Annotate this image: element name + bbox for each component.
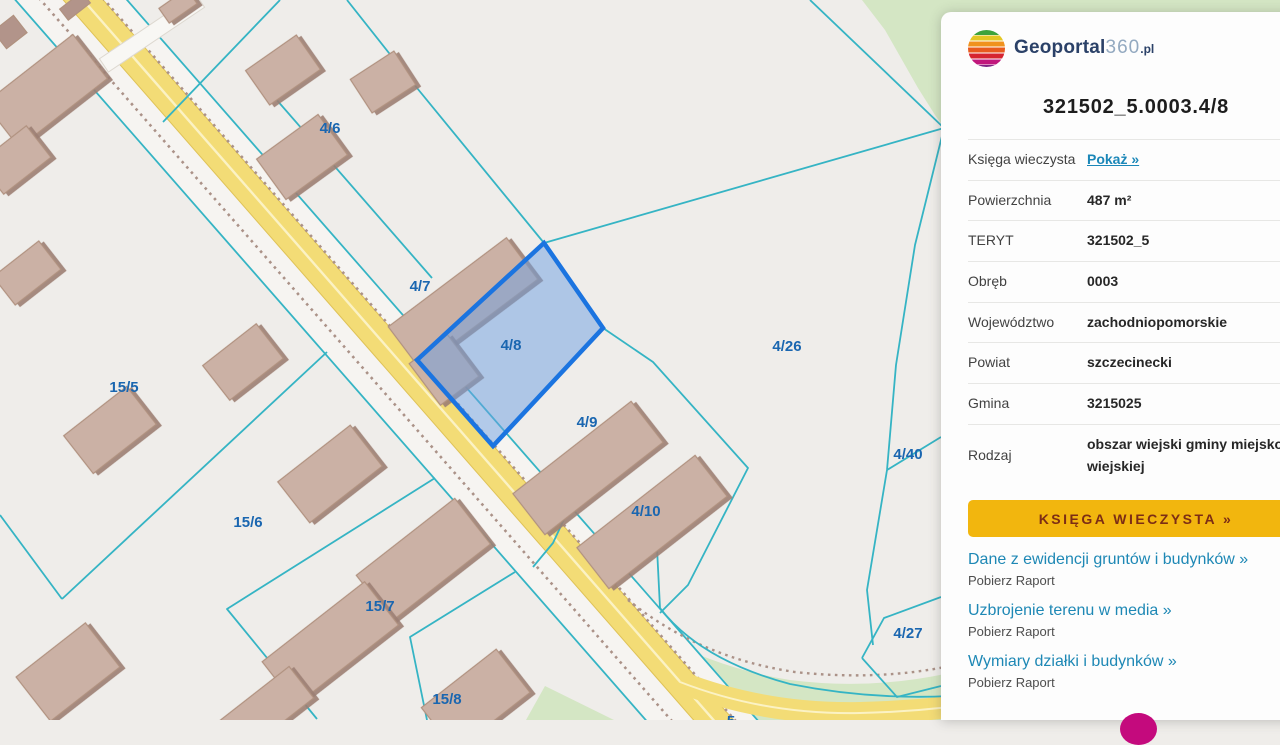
report-links: Dane z ewidencji gruntów i budynków » Po… bbox=[968, 551, 1280, 690]
logo-text-secondary: 360 bbox=[1106, 37, 1141, 58]
logo-wordmark: Geoportal360.pl bbox=[1014, 37, 1154, 59]
row-label: Księga wieczysta bbox=[968, 140, 1087, 181]
link-wymiary[interactable]: Wymiary działki i budynków » bbox=[968, 653, 1280, 671]
parcel-label-4-7[interactable]: 4/7 bbox=[410, 278, 431, 295]
link-subtitle[interactable]: Pobierz Raport bbox=[968, 675, 1280, 690]
table-row: Powiat szczecinecki bbox=[968, 343, 1280, 384]
parcel-label-15-5[interactable]: 15/5 bbox=[109, 379, 138, 396]
row-label: TERYT bbox=[968, 221, 1087, 262]
parcel-label-4-26[interactable]: 4/26 bbox=[772, 338, 801, 355]
parcel-label-15-6[interactable]: 15/6 bbox=[233, 514, 262, 531]
table-row: Powierzchnia 487 m² bbox=[968, 180, 1280, 221]
link-subtitle[interactable]: Pobierz Raport bbox=[968, 624, 1280, 639]
parcel-label-4-9[interactable]: 4/9 bbox=[577, 414, 598, 431]
info-panel: Geoportal360.pl 321502_5.0003.4/8 Księga… bbox=[941, 12, 1280, 720]
table-row: Rodzaj obszar wiejski gminy miejsko-wiej… bbox=[968, 424, 1280, 486]
row-label: Powiat bbox=[968, 343, 1087, 384]
link-ewidencja[interactable]: Dane z ewidencji gruntów i budynków » bbox=[968, 551, 1280, 569]
parcel-label-15-7[interactable]: 15/7 bbox=[365, 598, 394, 615]
parcel-label-4-10[interactable]: 4/10 bbox=[631, 503, 660, 520]
row-value: 321502_5 bbox=[1087, 221, 1280, 262]
table-row: Księga wieczysta Pokaż » bbox=[968, 140, 1280, 181]
show-deed-link[interactable]: Pokaż » bbox=[1087, 151, 1139, 167]
parcel-label-15-8[interactable]: 15/8 bbox=[432, 691, 461, 708]
row-value: zachodniopomorskie bbox=[1087, 302, 1280, 343]
parcel-id-title: 321502_5.0003.4/8 bbox=[968, 96, 1280, 119]
parcel-label-4-8[interactable]: 4/8 bbox=[501, 337, 522, 354]
logo-text-primary: Geoportal bbox=[1014, 37, 1106, 58]
parcel-label-4-27[interactable]: 4/27 bbox=[893, 625, 922, 642]
row-label: Województwo bbox=[968, 302, 1087, 343]
parcel-label-4-6[interactable]: 4/6 bbox=[320, 120, 341, 137]
row-value: obszar wiejski gminy miejsko-wiejskiej bbox=[1087, 424, 1280, 486]
row-value: 487 m² bbox=[1087, 180, 1280, 221]
link-uzbrojenie[interactable]: Uzbrojenie terenu w media » bbox=[968, 602, 1280, 620]
table-row: Obręb 0003 bbox=[968, 262, 1280, 303]
link-item: Uzbrojenie terenu w media » Pobierz Rapo… bbox=[968, 602, 1280, 639]
table-row: TERYT 321502_5 bbox=[968, 221, 1280, 262]
table-row: Gmina 3215025 bbox=[968, 384, 1280, 425]
geoportal-globe-icon bbox=[968, 30, 1005, 67]
row-label: Obręb bbox=[968, 262, 1087, 303]
row-value: 3215025 bbox=[1087, 384, 1280, 425]
logo-text-tld: .pl bbox=[1140, 42, 1154, 56]
row-value: 0003 bbox=[1087, 262, 1280, 303]
row-label: Gmina bbox=[968, 384, 1087, 425]
parcel-label-clipped: 5 bbox=[727, 713, 735, 720]
row-value: szczecinecki bbox=[1087, 343, 1280, 384]
row-label: Powierzchnia bbox=[968, 180, 1087, 221]
link-item: Dane z ewidencji gruntów i budynków » Po… bbox=[968, 551, 1280, 588]
magenta-fab-button[interactable] bbox=[1120, 713, 1157, 745]
link-subtitle[interactable]: Pobierz Raport bbox=[968, 573, 1280, 588]
link-item: Wymiary działki i budynków » Pobierz Rap… bbox=[968, 653, 1280, 690]
row-label: Rodzaj bbox=[968, 424, 1087, 486]
table-row: Województwo zachodniopomorskie bbox=[968, 302, 1280, 343]
parcel-info-table: Księga wieczysta Pokaż » Powierzchnia 48… bbox=[968, 139, 1280, 486]
ksiega-wieczysta-button[interactable]: KSIĘGA WIECZYSTA » bbox=[968, 500, 1280, 537]
logo[interactable]: Geoportal360.pl bbox=[968, 27, 1280, 69]
parcel-label-4-40[interactable]: 4/40 bbox=[893, 446, 922, 463]
